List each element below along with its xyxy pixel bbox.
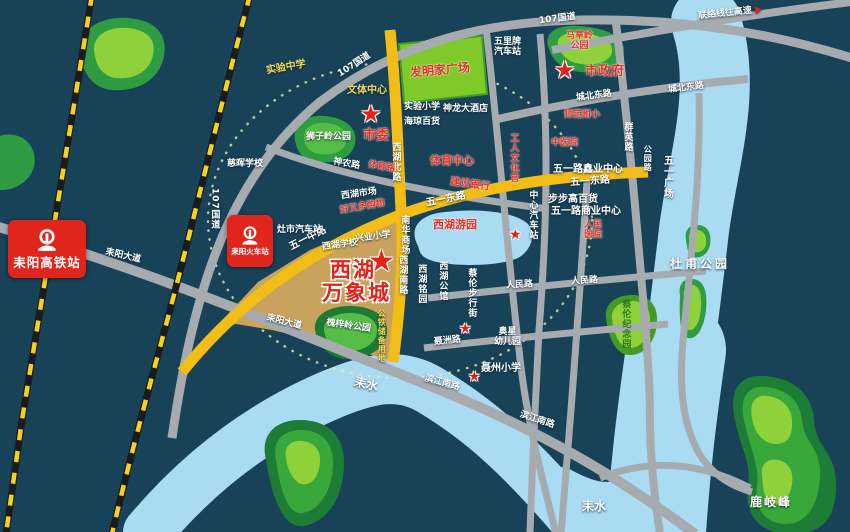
china-railway-logo-icon bbox=[239, 225, 261, 246]
huoche-station-badge: 耒阳火车站 bbox=[227, 215, 273, 267]
poi-shenlong-hotel: 神龙大酒店 bbox=[443, 104, 488, 114]
park-topleft-hill bbox=[80, 18, 165, 90]
poi-wenti-zhongxin: 文体中心 bbox=[347, 85, 387, 97]
star-icon: ★ bbox=[360, 102, 382, 126]
road-label-gongyuan: 公园路 bbox=[643, 145, 652, 172]
park-label-dufu: 杜甫公园 bbox=[670, 258, 730, 272]
poi-gongren-wenhuagong: 工人文化宫 bbox=[508, 133, 518, 183]
star-icon: ★ bbox=[554, 58, 576, 82]
poi-tiyu-zhongxin: 体育中心 bbox=[430, 155, 474, 168]
macaoling-line1: 马草岭 bbox=[566, 31, 593, 41]
poi-wuyilu-xinye-center: 五一路鑫业中心 bbox=[553, 164, 623, 176]
poi-xihu-mingyuan: 西湖铭园 bbox=[416, 264, 426, 304]
macaoling-line2: 公园 bbox=[566, 41, 593, 51]
poi-wuyilu-shangye-center: 五一路商业中心 bbox=[551, 206, 621, 218]
poi-shiyan-xiaoxue: 实验小学 bbox=[404, 102, 440, 112]
landmark-name-bottom: 万象城 bbox=[322, 277, 391, 307]
mountain-left bbox=[265, 420, 344, 526]
poi-shifan-fuxiao: 师范附小 bbox=[564, 110, 600, 120]
poi-wuyi-guangchang: 五一广场 bbox=[661, 155, 673, 199]
poi-niezhou-xiaoxue: 聂州小学 bbox=[481, 363, 521, 375]
park-leftedge-hill bbox=[0, 135, 35, 190]
park-label-cailun-jinianyuan: 蔡伦纪念园 bbox=[620, 299, 630, 349]
star-icon: ★ bbox=[509, 228, 522, 242]
wulipai-line2: 汽车站 bbox=[494, 47, 521, 57]
park-label-luqifeng: 鹿岐峰 bbox=[750, 496, 792, 510]
aoxing-line2: 幼儿园 bbox=[494, 337, 521, 347]
poi-nanhua-shangchang: 南华商场 bbox=[399, 215, 409, 255]
poi-renmin-yiyuan: 人民 医院 bbox=[584, 220, 602, 241]
star-icon: ★ bbox=[368, 247, 395, 277]
aoxing-line1: 奥星 bbox=[494, 327, 521, 337]
poi-cihui-school: 慈晖学校 bbox=[227, 159, 263, 169]
poi-cailun-buxingjie: 蔡伦步行街 bbox=[466, 268, 476, 318]
gaotie-badge-label: 耒阳高铁站 bbox=[13, 252, 81, 271]
star-icon: ★ bbox=[468, 370, 481, 384]
poi-gongtie-reserve-land: 公铁储备用地 bbox=[377, 309, 386, 363]
poi-xihu-youyuan: 西湖游园 bbox=[433, 219, 477, 232]
gaotie-station-badge: 耒阳高铁站 bbox=[8, 220, 86, 278]
star-icon: ★ bbox=[459, 322, 472, 336]
road-label-renmin: 人民路 bbox=[506, 279, 534, 291]
huoche-badge-label: 耒阳火车站 bbox=[231, 246, 269, 257]
china-railway-logo-icon bbox=[34, 228, 60, 252]
poi-zaoshi-bus-station: 灶市汽车站 bbox=[277, 225, 322, 235]
poi-bubugao: 步步高百货 bbox=[548, 194, 598, 206]
park-label-shiziling: 狮子岭公园 bbox=[306, 132, 351, 142]
water-label-leishui: 耒水 bbox=[582, 500, 606, 514]
road-label-qunying: 群英路 bbox=[622, 122, 632, 152]
arrow-right-icon: ▶ bbox=[754, 5, 762, 16]
park-label-macaoling: 马草岭 公园 bbox=[566, 31, 593, 52]
poi-zhongxin-bus-station: 中心汽车站 bbox=[527, 190, 537, 240]
poi-shiwei: 市委 bbox=[363, 129, 389, 144]
river-left bbox=[148, 379, 585, 532]
renmin-yiyuan-line1: 人民 bbox=[584, 220, 602, 230]
poi-aoxing-kindergarten: 奥星 幼儿园 bbox=[494, 327, 521, 348]
poi-wulipai-station: 五里牌 汽车站 bbox=[494, 37, 521, 58]
poi-haiqiong-baihuo: 海琼百货 bbox=[404, 117, 440, 127]
road-label-xihu-nan: 西湖南路 bbox=[397, 255, 407, 295]
wulipai-line1: 五里牌 bbox=[494, 37, 521, 47]
road-label-xihu-bei: 西湖北路 bbox=[390, 142, 400, 182]
poi-xihu-gongguan: 西湖公馆 bbox=[437, 261, 447, 301]
poi-shizhengfu: 市政府 bbox=[585, 65, 624, 80]
road-label-107: 107国道 bbox=[209, 188, 219, 230]
leiyang-city-map: 107国道 107国道 107国道 联络线往高速 ▶ 城北东路 城北东路 群英路… bbox=[0, 0, 850, 532]
road-label-renmin: 人民路 bbox=[571, 275, 599, 287]
renmin-yiyuan-line2: 医院 bbox=[584, 230, 602, 240]
poi-zhongyiyuan: 中医院 bbox=[551, 138, 578, 148]
